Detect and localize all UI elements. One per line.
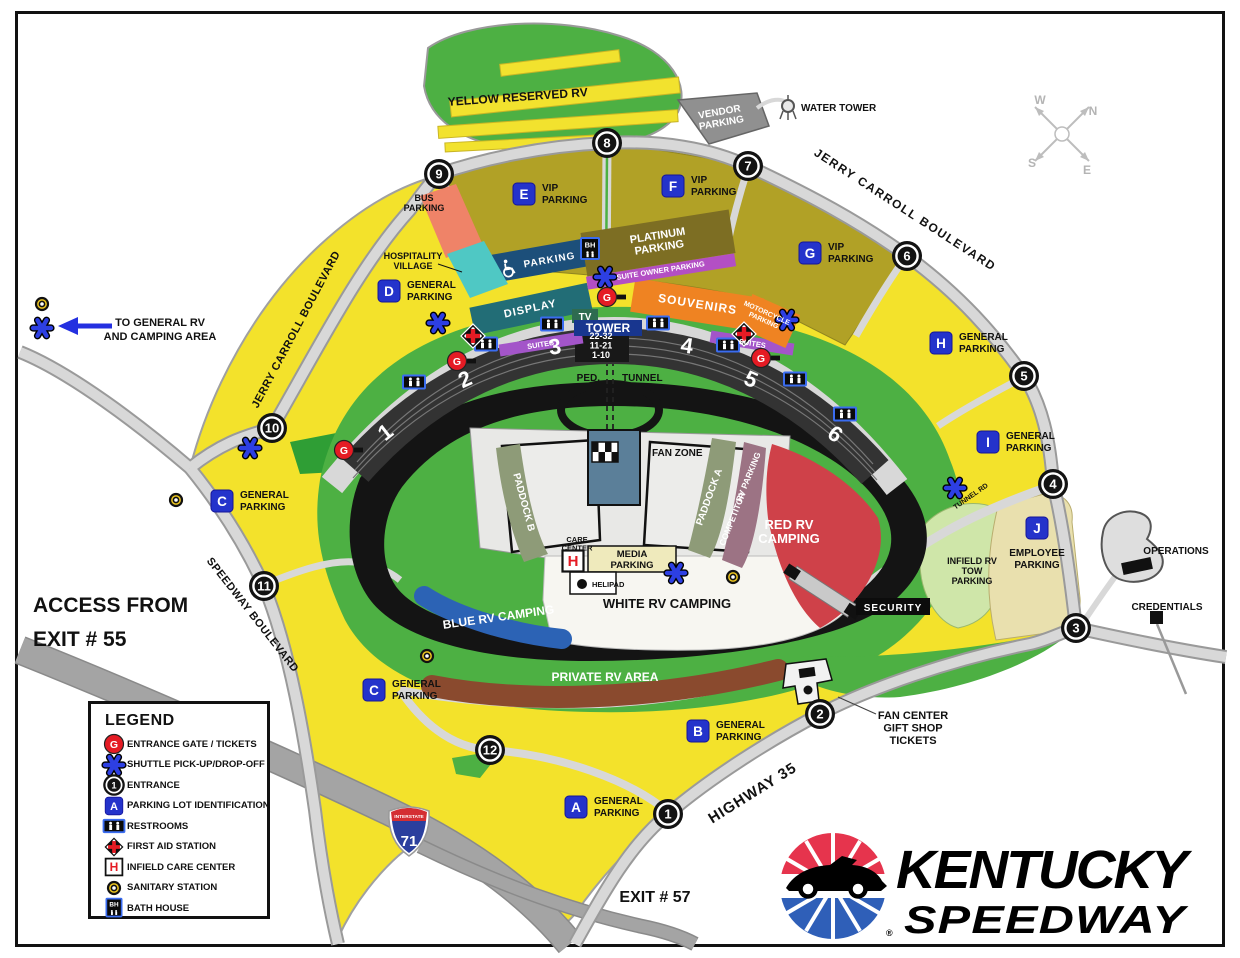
restrooms-icon [834, 408, 856, 421]
lot-label-D: GENERALPARKING [407, 280, 456, 303]
bath-house-icon: BH [106, 899, 121, 917]
svg-text:J: J [1033, 521, 1041, 536]
compass-s: S [1028, 156, 1036, 170]
operations-label: OPERATIONS [1143, 546, 1209, 557]
sanitary-station-icon [421, 650, 433, 662]
entrance-10-marker: 10 [257, 413, 287, 443]
shuttle-icon [429, 315, 447, 331]
shuttle-icon [241, 440, 259, 456]
white-rv-camping-label: WHITE RV CAMPING [603, 596, 731, 611]
svg-text:D: D [384, 284, 394, 299]
compass-n: N [1089, 104, 1098, 118]
logo-kentucky: KENTUCKY [896, 840, 1193, 900]
shuttle-icon [33, 320, 51, 336]
svg-text:C: C [369, 683, 379, 698]
restrooms-icon [647, 317, 669, 330]
svg-text:G: G [110, 739, 118, 751]
tunnel-label: TUNNEL [622, 373, 663, 384]
svg-text:BH: BH [109, 902, 119, 909]
svg-text:9: 9 [435, 167, 442, 182]
legend-item-label: RESTROOMS [127, 821, 188, 832]
lot-badge-I: I [977, 431, 999, 453]
sanitary-station-icon [36, 298, 48, 310]
lot-badge-J: J [1026, 517, 1048, 539]
svg-text:8: 8 [603, 136, 610, 151]
lot-label-J: EMPLOYEEPARKING [1009, 548, 1065, 571]
svg-text:6: 6 [903, 249, 910, 264]
restrooms-icon [104, 820, 125, 832]
helipad-icon [577, 579, 587, 589]
sanitary-station-icon [108, 882, 120, 894]
lot-badge-C: C [211, 490, 233, 512]
compass-w: W [1034, 93, 1046, 107]
legend-item-label: INFIELD CARE CENTER [127, 862, 235, 873]
entrance-8-marker: 8 [592, 128, 622, 158]
legend-item-label: SANITARY STATION [127, 882, 217, 893]
svg-text:1: 1 [664, 807, 671, 822]
entrance-4-marker: 4 [1038, 469, 1068, 499]
credentials-label: CREDENTIALS [1131, 602, 1202, 613]
lot-badge-D: D [378, 280, 400, 302]
svg-text:10: 10 [265, 421, 279, 436]
infield-care-center-icon: H [563, 551, 584, 572]
restrooms-icon [541, 318, 563, 331]
legend-item-label: SHUTTLE PICK-UP/DROP-OFF [127, 759, 265, 770]
entrance-5-marker: 5 [1009, 361, 1039, 391]
sanitary-station-icon [727, 571, 739, 583]
checkered-flag-icon [592, 442, 618, 462]
legend-item-label: PARKING LOT IDENTIFICATION [127, 800, 270, 811]
lot-badge-A: A [105, 797, 123, 815]
shuttle-icon [667, 565, 685, 581]
svg-text:G: G [453, 356, 461, 368]
lot-badge-C: C [363, 679, 385, 701]
interstate-label: INTERSTATE [394, 814, 424, 820]
legend-title: LEGEND [105, 712, 259, 730]
legend-items: GENTRANCE GATE / TICKETSSHUTTLE PICK-UP/… [101, 734, 259, 919]
legend-item: BHBATH HOUSE [101, 898, 259, 919]
svg-text:2: 2 [816, 707, 823, 722]
kentucky-speedway-map-page: W N S E INTERSTATE 71 KENTUCKY SPEEDWAY … [0, 0, 1240, 958]
svg-text:H: H [936, 336, 946, 351]
svg-text:F: F [669, 179, 677, 194]
entrance-11-marker: 11 [249, 571, 279, 601]
entrance-1-marker: 1 [653, 799, 683, 829]
water-tower-label: WATER TOWER [801, 103, 877, 114]
entrance-3-marker: 3 [1061, 613, 1091, 643]
logo-speedway: SPEEDWAY [904, 899, 1188, 942]
red-rv-camping-label: RED RVCAMPING [758, 517, 819, 546]
legend-item-label: FIRST AID STATION [127, 841, 216, 852]
entrance-9-marker: 9 [424, 159, 454, 189]
legend-item-label: ENTRANCE [127, 780, 180, 791]
lot-badge-E: E [513, 183, 535, 205]
svg-text:H: H [568, 553, 579, 570]
svg-text:5: 5 [1020, 369, 1027, 384]
ped-label: PED. [577, 373, 601, 384]
shuttle-icon [946, 480, 964, 496]
svg-text:1: 1 [111, 781, 116, 791]
svg-text:H: H [110, 860, 119, 874]
svg-text:G: G [757, 353, 765, 365]
svg-text:B: B [693, 724, 703, 739]
lot-label-C: GENERALPARKING [240, 490, 289, 513]
security-label: SECURITY [864, 603, 923, 614]
svg-text:A: A [571, 800, 581, 815]
infield-care-center-icon: H [106, 859, 123, 876]
lot-label-A: GENERALPARKING [594, 796, 643, 819]
svg-text:G: G [603, 292, 611, 304]
svg-text:4: 4 [1049, 477, 1057, 492]
bath-house-icon: BH [581, 238, 599, 259]
lot-label-H: GENERALPARKING [959, 332, 1008, 355]
private-rv-area-label: PRIVATE RV AREA [552, 670, 659, 684]
lot-label-C: GENERALPARKING [392, 679, 441, 702]
legend-item-label: ENTRANCE GATE / TICKETS [127, 739, 257, 750]
entrance-12-marker: 12 [475, 735, 505, 765]
sanitary-station-icon [170, 494, 182, 506]
lot-badge-A: A [565, 796, 587, 818]
lot-badge-B: B [687, 720, 709, 742]
legend-item-label: BATH HOUSE [127, 903, 189, 914]
lot-label-B: GENERALPARKING [716, 720, 765, 743]
helipad-label: HELIPAD [592, 580, 625, 589]
entrance-7-marker: 7 [733, 151, 763, 181]
svg-text:12: 12 [483, 743, 497, 758]
interstate-number: 71 [401, 833, 418, 850]
lot-badge-H: H [930, 332, 952, 354]
exit-57-label: EXIT # 57 [619, 889, 690, 906]
svg-text:7: 7 [744, 159, 751, 174]
fan-zone-label: FAN ZONE [652, 448, 703, 459]
legend-box: LEGEND GENTRANCE GATE / TICKETSSHUTTLE P… [88, 701, 270, 919]
svg-text:G: G [805, 246, 816, 261]
shuttle-icon [596, 269, 614, 285]
entrance-2-marker: 2 [805, 699, 835, 729]
restrooms-icon [403, 376, 425, 389]
lot-label-I: GENERALPARKING [1006, 431, 1055, 454]
grandstand-rows-label: 22-3211-211-10 [589, 331, 612, 360]
svg-text:BH: BH [585, 241, 596, 250]
lot-badge-F: F [662, 175, 684, 197]
logo-registered: ® [886, 928, 893, 938]
entrance-6-marker: 6 [892, 241, 922, 271]
svg-text:3: 3 [1072, 621, 1079, 636]
restrooms-icon [784, 373, 806, 386]
lot-badge-G: G [799, 242, 821, 264]
svg-text:11: 11 [257, 579, 271, 594]
svg-text:E: E [519, 187, 528, 202]
svg-text:A: A [110, 801, 118, 813]
svg-text:G: G [340, 445, 348, 457]
restrooms-icon [717, 339, 739, 352]
kentucky-speedway-logo: KENTUCKY SPEEDWAY ® [773, 833, 1193, 942]
compass-e: E [1083, 163, 1091, 177]
svg-text:I: I [986, 435, 990, 450]
media-parking-label: MEDIAPARKING [610, 549, 653, 571]
shuttle-icon [105, 757, 123, 773]
svg-text:C: C [217, 494, 227, 509]
